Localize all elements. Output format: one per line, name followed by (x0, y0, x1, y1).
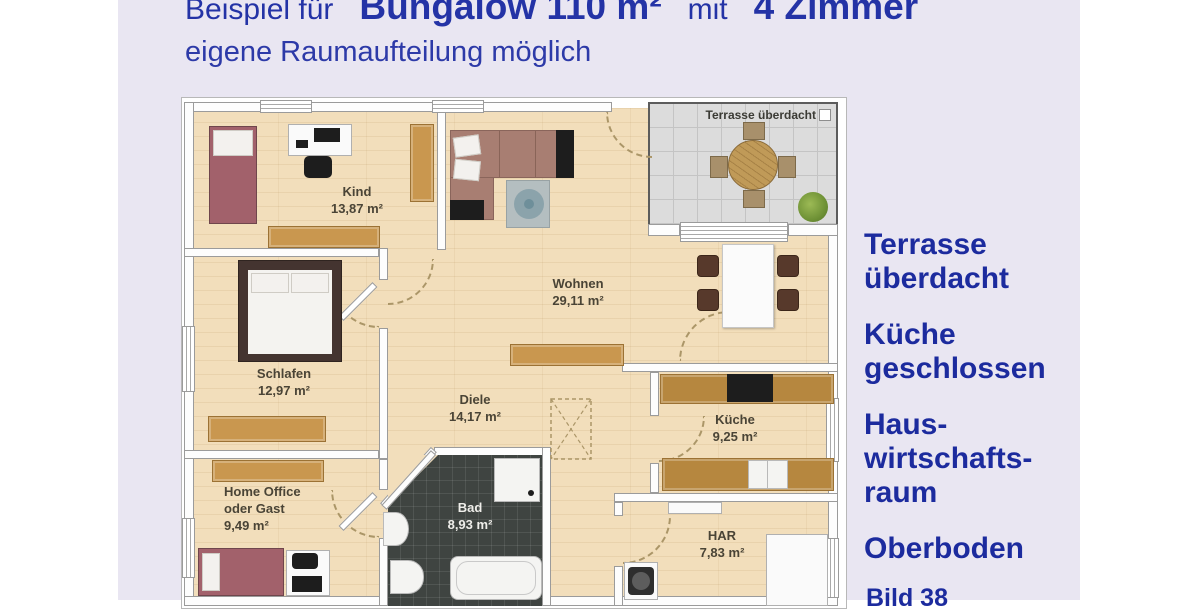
room-label-schlafen: Schlafen 12,97 m² (236, 366, 332, 400)
room-name: Diele (430, 392, 520, 409)
room-label-homeoffice: Home Office oder Gast 9,49 m² (224, 484, 334, 535)
page-title: Beispiel für Bungalow 110 m² mit 4 Zimme… (185, 0, 918, 28)
bad-toilet (390, 560, 424, 594)
sofa-cushion (453, 134, 482, 157)
title-prefix: Beispiel für (185, 0, 333, 27)
kitchen-sink (748, 460, 788, 489)
wall-kueche-left (650, 463, 659, 493)
floorplan: Terrasse überdacht (181, 97, 847, 609)
wall-har-left (614, 502, 623, 516)
title-main: Bungalow 110 m² (359, 0, 661, 28)
schlafen-wardrobe (208, 416, 326, 442)
wall-hall-left (379, 459, 388, 490)
terrace: Terrasse überdacht (648, 102, 838, 228)
dining-chair (697, 255, 719, 277)
har-washer-door (632, 572, 650, 590)
terrace-chair (743, 122, 765, 140)
dining-chair (777, 255, 799, 277)
room-label-kind: Kind 13,87 m² (310, 184, 404, 218)
room-area: 7,83 m² (680, 545, 764, 562)
room-name-2: oder Gast (224, 501, 334, 518)
kind-bed-pillow (213, 130, 253, 156)
room-label-wohnen: Wohnen 29,11 m² (530, 276, 626, 310)
page: { "header": { "title_prefix": "Beispiel … (0, 0, 1200, 600)
dining-table (722, 244, 774, 328)
window (826, 398, 839, 462)
kitchen-cooktop (727, 374, 773, 402)
bad-shower-drain (528, 490, 534, 496)
room-label-bad: Bad 8,93 m² (430, 500, 510, 534)
attic-ladder-marking (550, 398, 592, 460)
window (260, 100, 312, 113)
room-area: 14,17 m² (430, 409, 520, 426)
room-label-diele: Diele 14,17 m² (430, 392, 520, 426)
terrace-marker-icon (819, 109, 831, 121)
bad-sink (383, 512, 409, 546)
window (182, 326, 195, 392)
kind-wardrobe (268, 226, 380, 248)
room-label-kueche: Küche 9,25 m² (690, 412, 780, 446)
kind-desk-keyboard (296, 140, 308, 148)
room-name: Bad (430, 500, 510, 517)
homeoffice-printer (292, 576, 322, 592)
room-name: HAR (680, 528, 764, 545)
wall-stub (788, 224, 838, 236)
schlafen-pillow (251, 273, 289, 293)
window (182, 518, 195, 578)
room-name: Wohnen (530, 276, 626, 293)
wall-har-left (614, 566, 623, 606)
dining-chair (697, 289, 719, 311)
terrace-table (728, 140, 778, 190)
note-terrasse: Terrasse überdacht (864, 228, 1079, 296)
note-hauswirtschaftsraum: Haus- wirtschafts- raum (864, 408, 1079, 510)
homeoffice-chair (292, 553, 318, 569)
schlafen-pillow (291, 273, 329, 293)
room-area: 8,93 m² (430, 517, 510, 534)
homeoffice-wardrobe (212, 460, 324, 482)
room-area: 13,87 m² (310, 201, 404, 218)
bad-bathtub-inner (456, 561, 536, 595)
homeoffice-bed-pillow (202, 553, 220, 591)
kind-desk-chair (304, 156, 332, 178)
window (432, 100, 484, 113)
hall-cabinet (410, 124, 434, 202)
terrace-plant (798, 192, 828, 222)
sidebar-notes: Terrasse überdacht Küche geschlossen Hau… (864, 228, 1079, 588)
wall-kind-schlafen (184, 248, 379, 257)
title-mid: mit (688, 0, 728, 27)
wall-hall-left (379, 248, 388, 280)
wall-top (184, 102, 612, 112)
room-name: Schlafen (236, 366, 332, 383)
wall-stub (648, 224, 680, 236)
note-kueche: Küche geschlossen (864, 318, 1079, 386)
room-name: Küche (690, 412, 780, 429)
wall-kueche-har (614, 493, 838, 502)
title-rooms: 4 Zimmer (754, 0, 919, 28)
har-shelf (668, 502, 722, 514)
terrace-label: Terrasse überdacht (706, 108, 817, 122)
terrace-chair (778, 156, 796, 178)
note-oberboden: Oberboden (864, 532, 1079, 566)
room-name: Home Office (224, 484, 334, 501)
wall-kueche-left (650, 372, 659, 416)
wall-bad-right (542, 447, 551, 606)
sofa-side-table (556, 130, 574, 178)
page-subtitle: eigene Raumaufteilung möglich (185, 36, 591, 69)
wall-kind-wohnen (437, 110, 446, 250)
sideboard (510, 344, 624, 366)
image-caption: Bild 38 (866, 584, 948, 613)
dining-chair (777, 289, 799, 311)
sofa-side-table (450, 200, 484, 220)
har-cabinet (766, 534, 828, 606)
room-label-har: HAR 7,83 m² (680, 528, 764, 562)
room-area: 29,11 m² (530, 293, 626, 310)
terrace-sliding-door (680, 222, 788, 242)
wall-kueche-top (622, 363, 838, 372)
terrace-chair (710, 156, 728, 178)
room-area: 9,25 m² (690, 429, 780, 446)
wall-hall-left (379, 538, 388, 606)
sofa-cushion (453, 159, 481, 182)
room-name: Kind (310, 184, 404, 201)
kind-desk-computer (314, 128, 340, 142)
terrace-chair (743, 190, 765, 208)
wall-schlafen-homeoffice (184, 450, 379, 459)
bad-shower (494, 458, 540, 502)
room-area: 9,49 m² (224, 518, 334, 535)
room-area: 12,97 m² (236, 383, 332, 400)
coffee-table-decor-dot (524, 199, 534, 209)
wall-hall-left (379, 328, 388, 459)
